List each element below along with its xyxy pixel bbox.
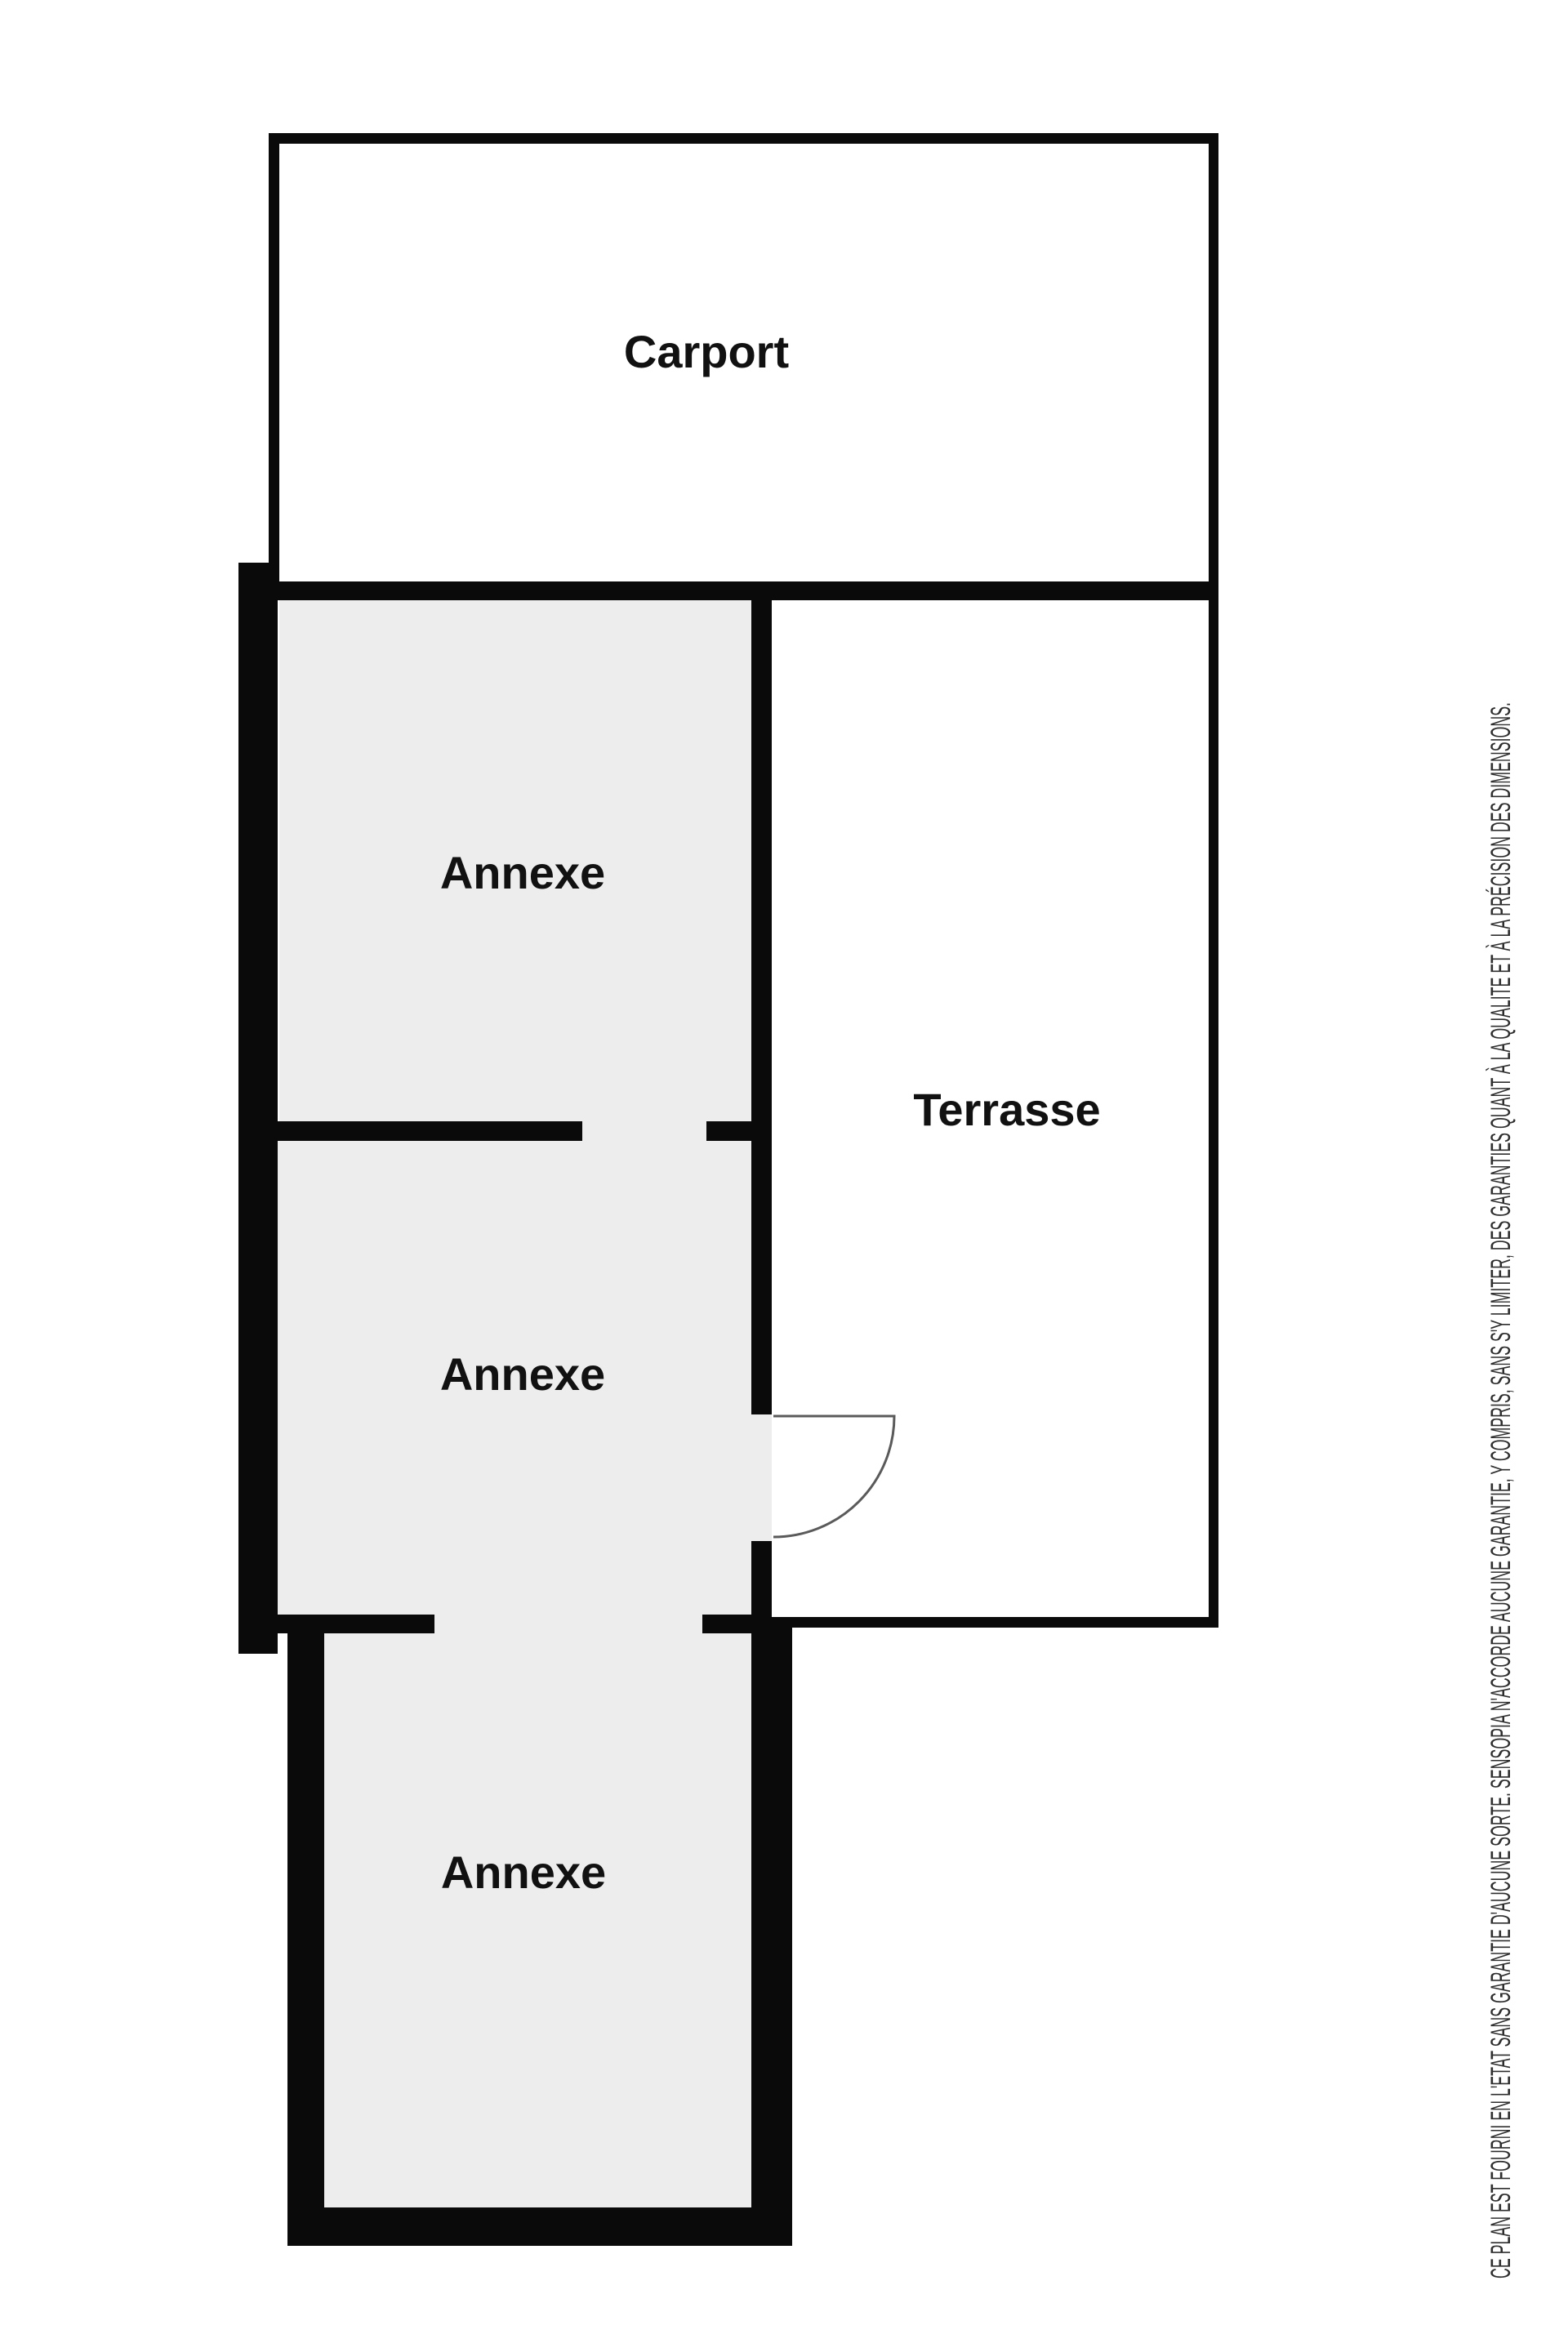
room-label-carport: Carport: [624, 326, 789, 377]
wall-annexe-lower-left: [287, 1625, 324, 2246]
wall-right-exterior: [1209, 133, 1218, 1628]
room-label-annexe-upper: Annexe: [440, 847, 605, 898]
wall-terrasse-bottom: [772, 1617, 1218, 1628]
floor-plan-canvas: Carport Annexe Terrasse Annexe Annexe CE…: [0, 0, 1568, 2352]
wall-partition2-left: [238, 1615, 434, 1633]
wall-carport-top: [269, 133, 1218, 144]
wall-divider-lower: [751, 1541, 772, 1617]
wall-annexe-lower-right: [751, 1625, 792, 2246]
disclaimer-vertical-text: CE PLAN EST FOURNI EN L'ETAT SANS GARANT…: [1486, 702, 1517, 2278]
wall-partition1-right: [706, 1121, 772, 1141]
wall-left-exterior: [238, 563, 278, 1654]
wall-carport-left: [269, 133, 279, 600]
wall-partition1-left: [278, 1121, 582, 1141]
wall-divider-upper: [751, 600, 772, 1414]
room-label-terrasse: Terrasse: [913, 1084, 1100, 1135]
floor-plan-page: Carport Annexe Terrasse Annexe Annexe CE…: [0, 0, 1568, 2352]
wall-main-top: [238, 581, 1218, 600]
wall-annexe-lower-bottom: [287, 2207, 792, 2246]
room-label-annexe-lower: Annexe: [441, 1846, 606, 1898]
annexe-lower-floor: [324, 1633, 751, 2207]
room-label-annexe-middle: Annexe: [440, 1348, 605, 1400]
